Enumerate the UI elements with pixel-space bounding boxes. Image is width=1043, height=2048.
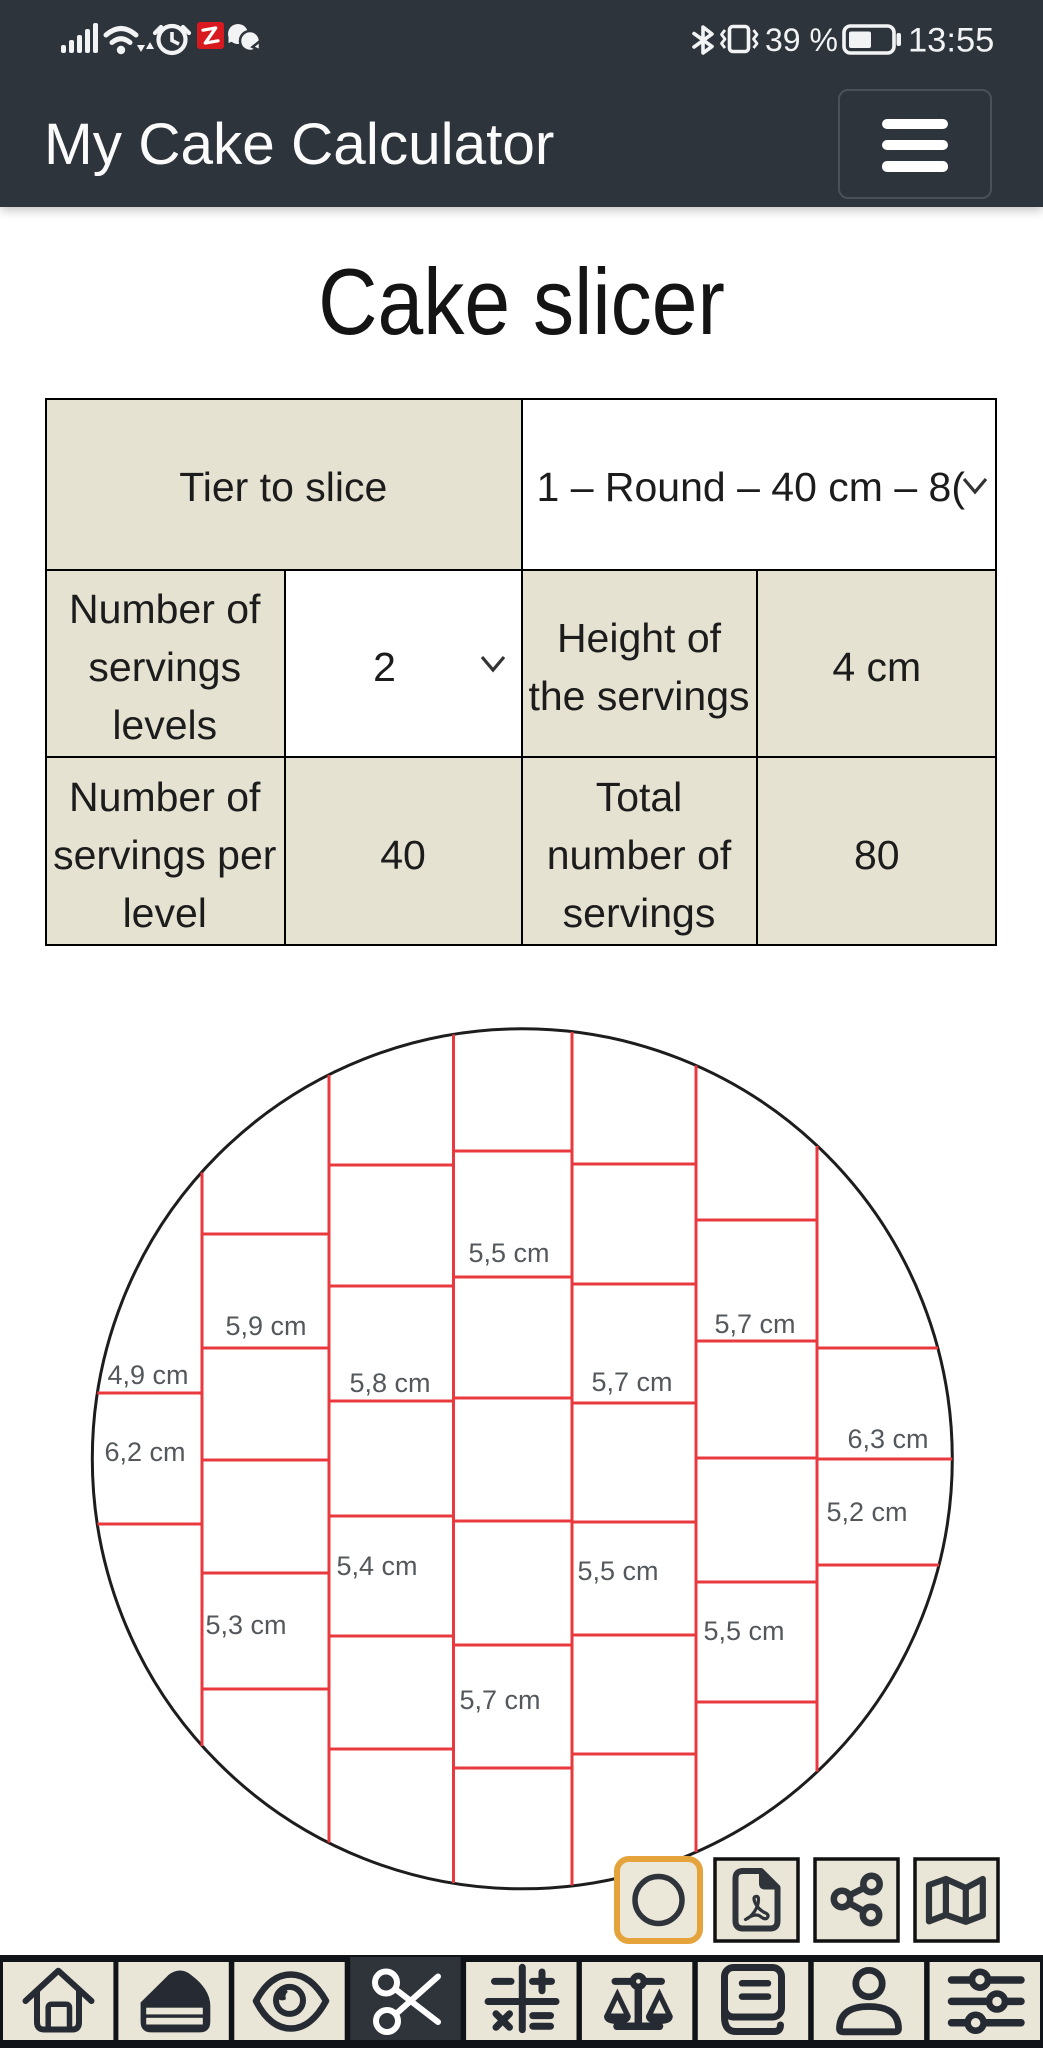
svg-text:5,7 cm: 5,7 cm: [714, 1309, 795, 1339]
svg-text:5,5 cm: 5,5 cm: [468, 1238, 549, 1268]
svg-text:5,7 cm: 5,7 cm: [459, 1685, 540, 1715]
svg-text:5,5 cm: 5,5 cm: [577, 1556, 658, 1586]
svg-text:5,5 cm: 5,5 cm: [703, 1616, 784, 1646]
svg-text:5,4 cm: 5,4 cm: [336, 1551, 417, 1581]
svg-text:6,3 cm: 6,3 cm: [847, 1424, 928, 1454]
svg-text:5,9 cm: 5,9 cm: [225, 1311, 306, 1341]
svg-text:5,8 cm: 5,8 cm: [349, 1368, 430, 1398]
svg-text:5,3 cm: 5,3 cm: [205, 1610, 286, 1640]
svg-text:5,7 cm: 5,7 cm: [591, 1367, 672, 1397]
svg-text:5,2 cm: 5,2 cm: [826, 1497, 907, 1527]
svg-text:4,9 cm: 4,9 cm: [107, 1360, 188, 1390]
svg-text:6,2 cm: 6,2 cm: [104, 1437, 185, 1467]
